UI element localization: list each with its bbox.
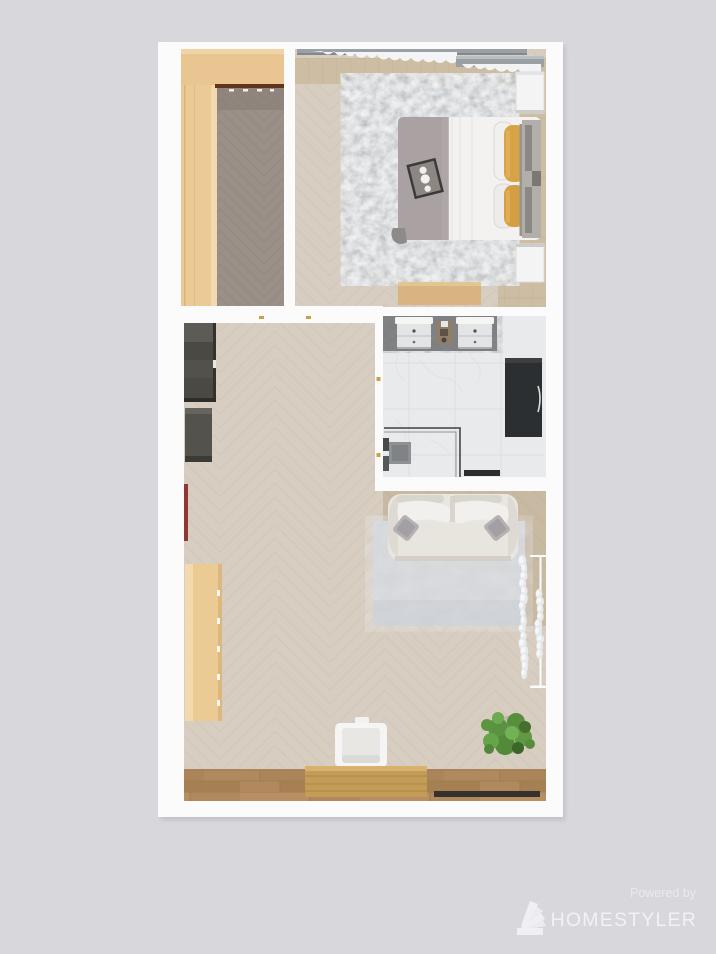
- svg-text:Powered by: Powered by: [630, 886, 697, 900]
- svg-text:HOMESTYLER: HOMESTYLER: [551, 909, 697, 931]
